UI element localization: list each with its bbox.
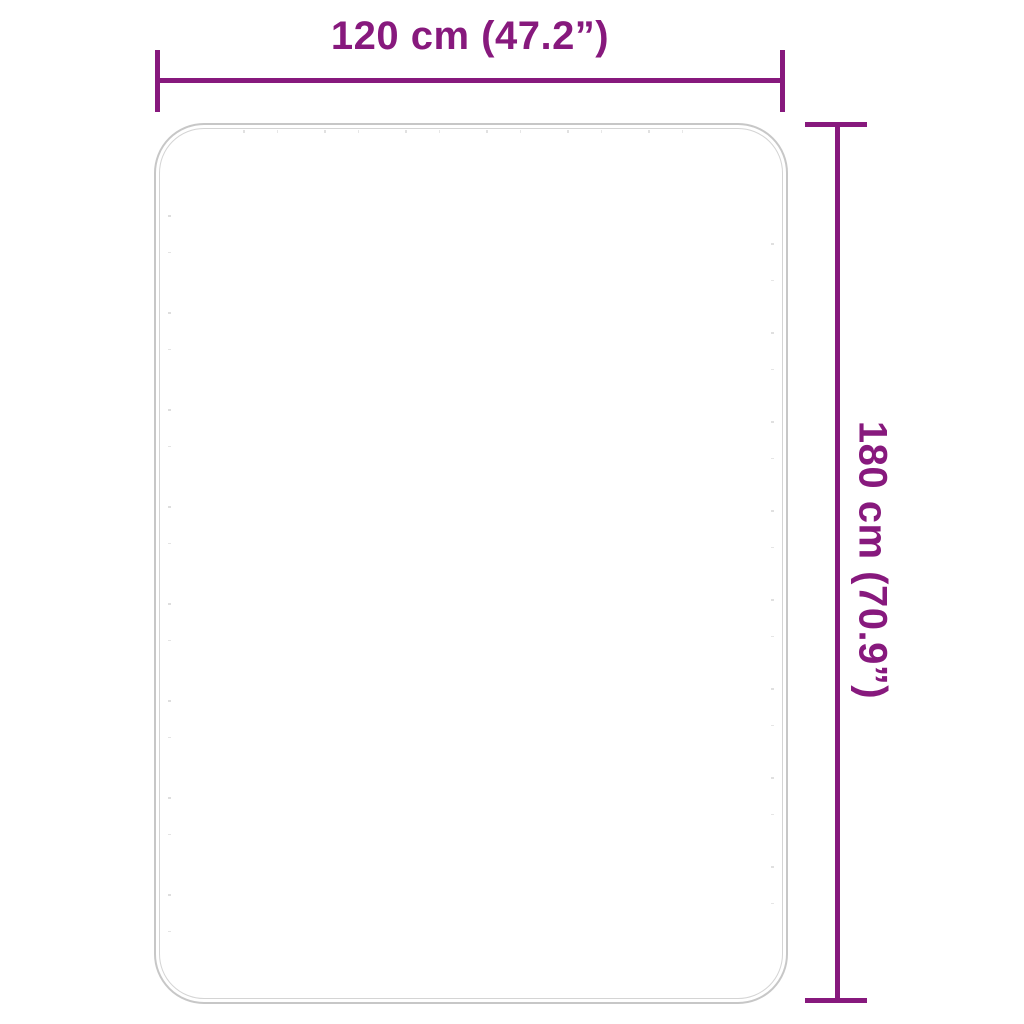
- height-dimension-line: [835, 124, 840, 1003]
- width-dimension-line: [157, 78, 783, 83]
- rug-inner-outline: [159, 128, 783, 999]
- rug-texture-right: [771, 209, 774, 918]
- height-dimension-tick-top: [805, 122, 867, 127]
- rug-texture-top: [220, 130, 722, 133]
- width-dimension-label: 120 cm (47.2”): [157, 14, 783, 59]
- height-dimension-label: 180 cm (70.9”): [850, 421, 895, 699]
- width-dimension-tick-right: [780, 50, 785, 112]
- rug-texture-left: [168, 189, 171, 938]
- height-dimension-tick-bottom: [805, 998, 867, 1003]
- dimension-diagram: 120 cm (47.2”) 180 cm (70.9”): [0, 0, 1024, 1024]
- rug-outline: [154, 123, 788, 1004]
- width-dimension-tick-left: [155, 50, 160, 112]
